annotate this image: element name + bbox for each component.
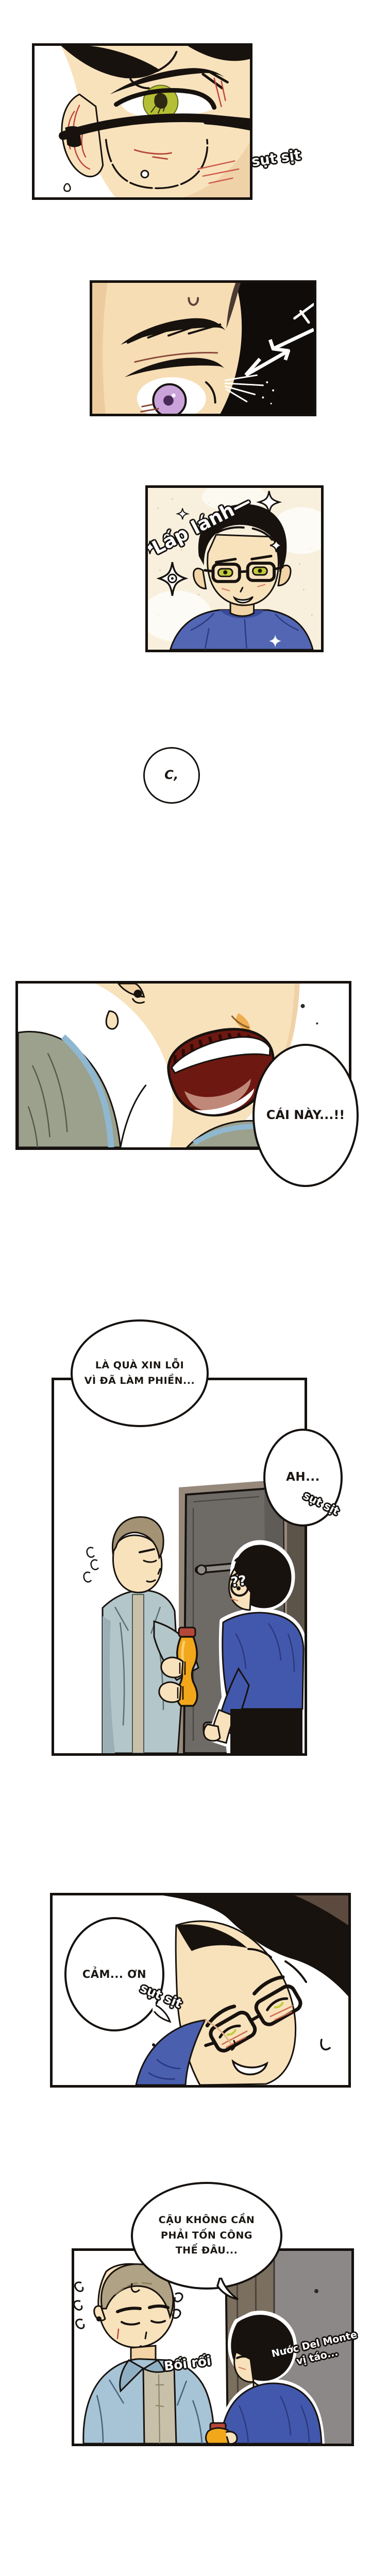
panel-2-artwork xyxy=(92,283,314,414)
no-need-line-2: PHẢI TỐN CÔNG xyxy=(161,2228,252,2243)
exclaim-text: CÁI NÀY...!! xyxy=(266,1106,345,1125)
panel-crying-eye-closeup xyxy=(32,43,252,200)
no-need-bubble-tail xyxy=(216,2275,239,2300)
apology-line-1: LÀ QUÀ XIN LỖI xyxy=(95,1358,184,1373)
apology-line-2: VÌ ĐÃ LÀM PHIỀN... xyxy=(85,1374,195,1388)
panel-1-artwork xyxy=(35,46,250,197)
sfx-sniffle-1: sụt sịt xyxy=(250,147,301,170)
speech-bubble-thanks: CẢM... ƠN xyxy=(64,1917,164,2031)
panel-shocked-eye xyxy=(90,280,316,416)
speech-bubble-exclaim: CÁI NÀY...!! xyxy=(252,1044,359,1187)
panel-5-artwork xyxy=(54,1380,305,1753)
no-need-line-1: CẬU KHÔNG CẦN xyxy=(159,2213,255,2228)
speech-bubble-apology: LÀ QUÀ XIN LỖI VÌ ĐÃ LÀM PHIỀN... xyxy=(71,1319,209,1427)
thanks-text: CẢM... ƠN xyxy=(82,1966,146,1983)
panel-gift-at-door xyxy=(52,1378,307,1756)
sfx-question-marks: ?? xyxy=(230,1573,247,1590)
speech-bubble-whisper: C, xyxy=(143,747,200,804)
webtoon-page: sụt sịt xyxy=(0,0,371,2576)
speech-bubble-no-need: CẬU KHÔNG CẦN PHẢI TỐN CÔNG THẾ ĐÂU... xyxy=(131,2182,282,2290)
no-need-line-3: THẾ ĐÂU... xyxy=(176,2243,238,2258)
whisper-text: C, xyxy=(164,766,179,785)
ah-text: AH... xyxy=(286,1468,320,1487)
thanks-bubble-tail xyxy=(153,2002,172,2024)
